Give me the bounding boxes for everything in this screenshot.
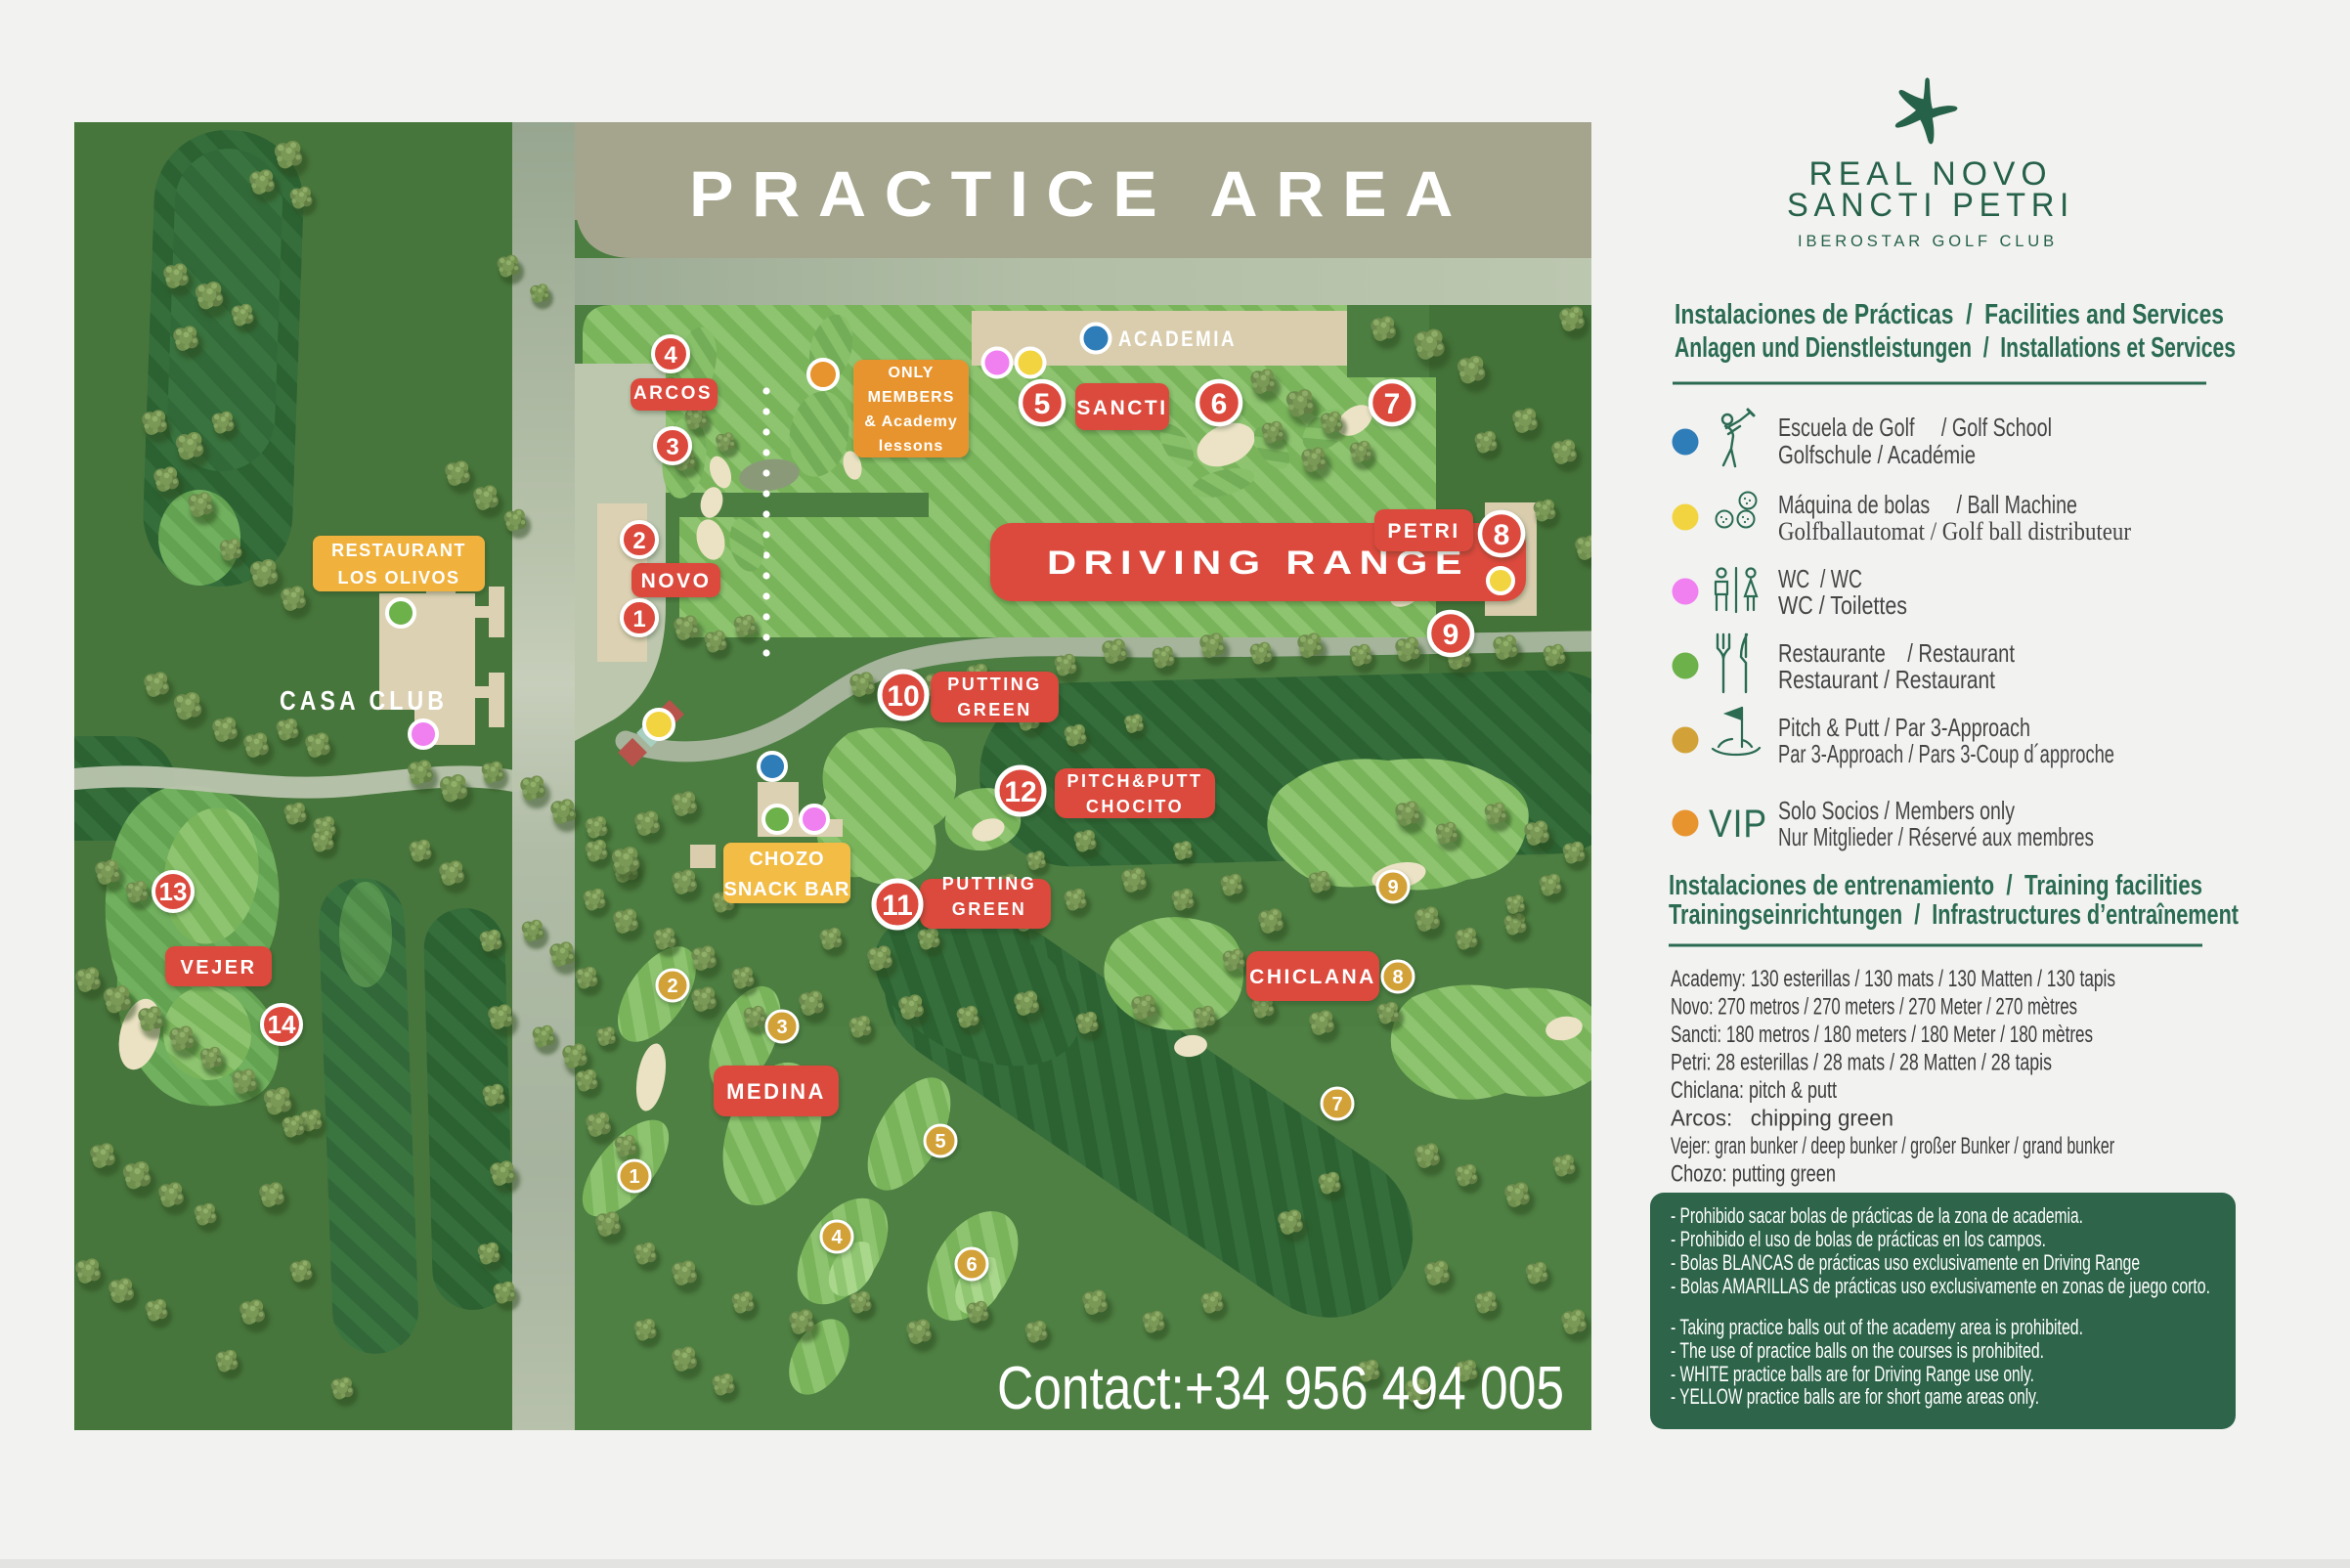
svg-text:NOVO: NOVO (641, 570, 712, 592)
svg-text:14: 14 (268, 1010, 296, 1039)
svg-text:CASA CLUB: CASA CLUB (280, 685, 448, 716)
svg-text:Solo Socios / Members only: Solo Socios / Members only (1778, 796, 2015, 825)
svg-text:MEDINA: MEDINA (726, 1079, 826, 1104)
svg-text:LOS OLIVOS: LOS OLIVOS (337, 568, 459, 588)
svg-text:Instalaciones de entrenamiento: Instalaciones de entrenamiento / Trainin… (1669, 870, 2202, 901)
svg-text:PITCH&PUTT: PITCH&PUTT (1067, 771, 1203, 791)
svg-text:Vejer: gran bunker / deep bunk: Vejer: gran bunker / deep bunker / große… (1671, 1133, 2114, 1159)
svg-text:13: 13 (159, 877, 188, 906)
svg-text:- Bolas BLANCAS de prácticas u: - Bolas BLANCAS de prácticas uso exclusi… (1671, 1250, 2140, 1275)
svg-text:Chozo: putting green: Chozo: putting green (1671, 1161, 1836, 1188)
svg-text:Par 3-Approach / Pars 3-Coup d: Par 3-Approach / Pars 3-Coup d´approche (1778, 739, 2114, 768)
svg-text:4: 4 (831, 1227, 843, 1248)
svg-text:12: 12 (1004, 776, 1036, 808)
svg-text:Trainingseinrichtungen / Inf: Trainingseinrichtungen / Infrastructures… (1669, 899, 2239, 931)
svg-text:MEMBERS: MEMBERS (868, 389, 955, 406)
svg-text:2: 2 (667, 976, 677, 997)
svg-text:Petri: 28 esterillas / 28 mats: Petri: 28 esterillas / 28 mats / 28 Matt… (1671, 1050, 2052, 1076)
svg-text:7: 7 (1384, 388, 1401, 420)
svg-text:PETRI: PETRI (1387, 520, 1459, 543)
svg-text:PUTTING: PUTTING (942, 874, 1037, 893)
svg-text:VIP: VIP (1709, 803, 1767, 846)
svg-text:3: 3 (666, 434, 678, 460)
svg-text:VEJER: VEJER (180, 957, 256, 979)
svg-text:Golfschule / Académie: Golfschule / Académie (1778, 440, 1976, 469)
svg-text:7: 7 (1331, 1094, 1342, 1115)
svg-text:PUTTING: PUTTING (947, 675, 1042, 694)
svg-text:8: 8 (1494, 519, 1510, 551)
svg-text:- Taking practice balls out of: - Taking practice balls out of the acade… (1671, 1315, 2083, 1339)
svg-text:ONLY: ONLY (889, 365, 935, 381)
svg-text:SANCTI PETRI: SANCTI PETRI (1787, 187, 2074, 224)
svg-text:- Bolas AMARILLAS de prácticas: - Bolas AMARILLAS de prácticas uso exclu… (1671, 1274, 2210, 1298)
svg-text:Contact:+34 956 494 005: Contact:+34 956 494 005 (997, 1355, 1564, 1422)
svg-text:ACADEMIA: ACADEMIA (1118, 327, 1237, 351)
svg-text:WC / Toilettes: WC / Toilettes (1778, 590, 1907, 620)
svg-text:4: 4 (664, 342, 677, 369)
svg-text:10: 10 (887, 680, 919, 713)
svg-text:Arcos: chipping green: Arcos: chipping green (1671, 1106, 1893, 1131)
svg-text:11: 11 (882, 890, 913, 922)
svg-text:Restaurant / Restaurant: Restaurant / Restaurant (1778, 665, 1996, 694)
svg-text:- The use of practice balls on: - The use of practice balls on the cours… (1671, 1338, 2044, 1363)
svg-text:GREEN: GREEN (952, 899, 1027, 919)
svg-text:& Academy: & Academy (864, 414, 958, 430)
svg-text:GREEN: GREEN (957, 700, 1032, 719)
svg-text:3: 3 (776, 1017, 787, 1038)
svg-text:Escuela de Golf / Golf Sch: Escuela de Golf / Golf School (1778, 413, 2052, 442)
svg-text:2: 2 (632, 528, 645, 554)
svg-text:Pitch & Putt / Par 3-Approach: Pitch & Putt / Par 3-Approach (1778, 713, 2030, 742)
svg-text:Academy: 130 esterillas / 130: Academy: 130 esterillas / 130 mats / 130… (1671, 966, 2115, 992)
svg-text:5: 5 (1034, 388, 1051, 420)
svg-text:SNACK BAR: SNACK BAR (724, 879, 850, 900)
svg-text:CHICLANA: CHICLANA (1249, 966, 1376, 988)
svg-text:5: 5 (935, 1131, 945, 1153)
svg-text:CHOZO: CHOZO (749, 849, 824, 870)
svg-text:- WHITE practice balls are for: - WHITE practice balls are for Driving R… (1671, 1362, 2034, 1386)
svg-text:lessons: lessons (879, 438, 944, 455)
svg-text:ARCOS: ARCOS (633, 383, 713, 404)
svg-text:Restaurante / Restaurant: Restaurante / Restaurant (1778, 638, 2016, 668)
svg-text:SANCTI: SANCTI (1076, 397, 1167, 419)
svg-text:Novo: 270 metros / 270 meters: Novo: 270 metros / 270 meters / 270 Mete… (1671, 994, 2077, 1021)
svg-text:Golfballautomat / Golf ball di: Golfballautomat / Golf ball distributeur (1778, 517, 2131, 545)
svg-text:9: 9 (1443, 619, 1459, 651)
svg-text:1: 1 (632, 606, 645, 632)
svg-text:Anlagen und Dienstleistungen: Anlagen und Dienstleistungen / Installat… (1675, 332, 2236, 364)
svg-text:6: 6 (1211, 388, 1228, 420)
svg-text:WC / WC: WC / WC (1778, 564, 1862, 593)
svg-text:Instalaciones de Prácticas /: Instalaciones de Prácticas / Facilities … (1675, 299, 2224, 330)
svg-text:PRACTICE AREA: PRACTICE AREA (689, 157, 1471, 230)
svg-text:- Prohibido sacar bolas de prá: - Prohibido sacar bolas de prácticas de … (1671, 1203, 2083, 1228)
svg-text:RESTAURANT: RESTAURANT (331, 541, 466, 560)
svg-text:IBEROSTAR GOLF CLUB: IBEROSTAR GOLF CLUB (1798, 232, 2058, 250)
svg-text:1: 1 (629, 1166, 639, 1188)
svg-text:6: 6 (966, 1254, 977, 1276)
svg-text:CHOCITO: CHOCITO (1086, 797, 1184, 816)
svg-text:- YELLOW practice balls are fo: - YELLOW practice balls are for short ga… (1671, 1384, 2039, 1409)
svg-text:Chiclana: pitch & putt: Chiclana: pitch & putt (1671, 1077, 1837, 1104)
svg-text:9: 9 (1387, 877, 1398, 898)
svg-text:Nur Mitglieder / Réservé aux m: Nur Mitglieder / Réservé aux membres (1778, 822, 2094, 851)
svg-text:Máquina de bolas / Ball Ma: Máquina de bolas / Ball Machine (1778, 490, 2077, 519)
svg-text:Sancti: 180 metros / 180 meter: Sancti: 180 metros / 180 meters / 180 Me… (1671, 1022, 2093, 1048)
svg-text:8: 8 (1392, 967, 1403, 988)
svg-text:- Prohibido el uso de bolas de: - Prohibido el uso de bolas de prácticas… (1671, 1227, 2046, 1251)
